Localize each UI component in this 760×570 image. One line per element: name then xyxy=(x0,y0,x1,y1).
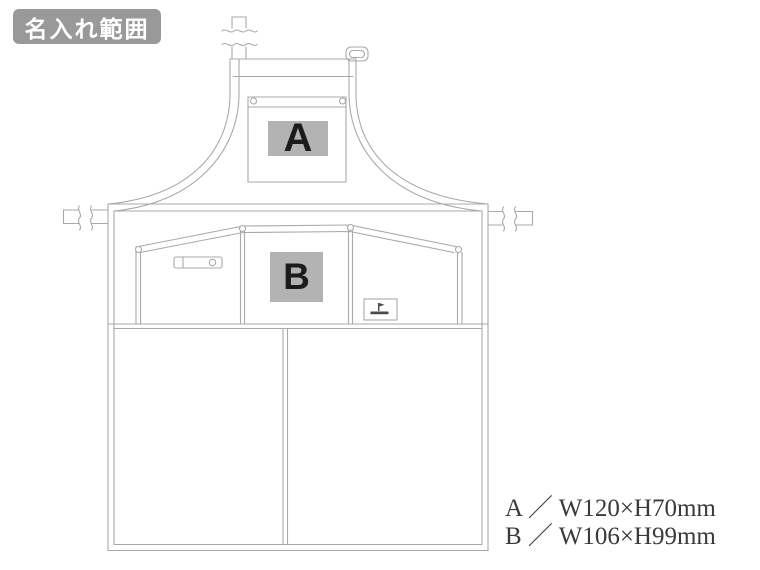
pen-holder-strap xyxy=(174,257,222,268)
brand-logo-icon xyxy=(371,303,389,314)
break-mark xyxy=(514,207,516,231)
rivet-icon xyxy=(251,98,257,104)
size-line-b: B ／ W106×H99mm xyxy=(505,523,716,551)
bottom-pocket-divider xyxy=(283,329,288,545)
break-mark xyxy=(78,206,80,230)
print-area-b-letter: B xyxy=(283,256,310,298)
rivet-icon xyxy=(348,225,354,231)
neck-strap xyxy=(222,17,257,59)
waist-tie-left xyxy=(64,206,109,230)
rivet-icon xyxy=(240,226,246,232)
product-imprint-diagram: 名入れ範囲 A B A ／ W120×H70mm B ／ W106×H99mm xyxy=(0,0,760,570)
print-area-b: B xyxy=(270,252,323,302)
rivet-icon xyxy=(136,247,142,253)
apron-diagram xyxy=(0,0,760,570)
brand-tag xyxy=(364,299,397,320)
imprint-area-badge: 名入れ範囲 xyxy=(13,9,161,44)
rivet-icon xyxy=(456,247,462,253)
break-mark xyxy=(222,43,257,45)
rivet-icon xyxy=(340,98,346,104)
print-area-a-letter: A xyxy=(284,116,313,161)
break-mark xyxy=(502,207,504,231)
waist-tie-right xyxy=(488,207,533,231)
break-mark xyxy=(222,30,257,32)
size-legend: A ／ W120×H70mm B ／ W106×H99mm xyxy=(505,495,716,551)
print-area-a: A xyxy=(268,121,328,156)
size-line-a: A ／ W120×H70mm xyxy=(505,495,716,523)
